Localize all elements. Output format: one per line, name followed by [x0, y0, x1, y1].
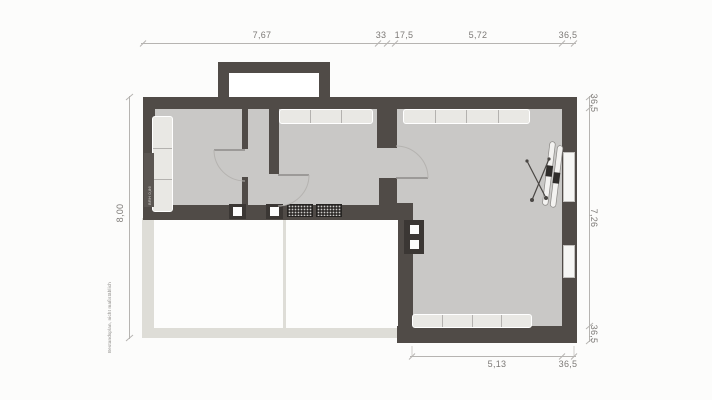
- door-middle-room: [278, 175, 309, 206]
- floor-plan: BRH 0,86: [0, 0, 712, 400]
- dim-right-3: 36,5: [588, 318, 600, 350]
- dim-top-4: 5,72: [458, 29, 498, 41]
- dim-bottom-1: 5,13: [477, 358, 517, 370]
- dim-top-3: 17,5: [392, 29, 416, 41]
- dim-line-top: [140, 41, 577, 47]
- dim-top-1: 7,67: [242, 29, 282, 41]
- dim-right-1: 36,5: [588, 87, 600, 119]
- dim-line-left: [126, 94, 133, 341]
- dim-top-5: 36,5: [548, 29, 588, 41]
- dim-left: 8,00: [114, 197, 126, 229]
- dim-top-2: 33: [374, 29, 388, 41]
- margin-note: Bestandsplan, nicht maßstäblich: [107, 282, 112, 353]
- door-right-room: [396, 146, 428, 178]
- dim-bottom-2: 36,5: [548, 358, 588, 370]
- dim-right-2: 7,26: [588, 202, 600, 234]
- door-left-room: [214, 150, 245, 181]
